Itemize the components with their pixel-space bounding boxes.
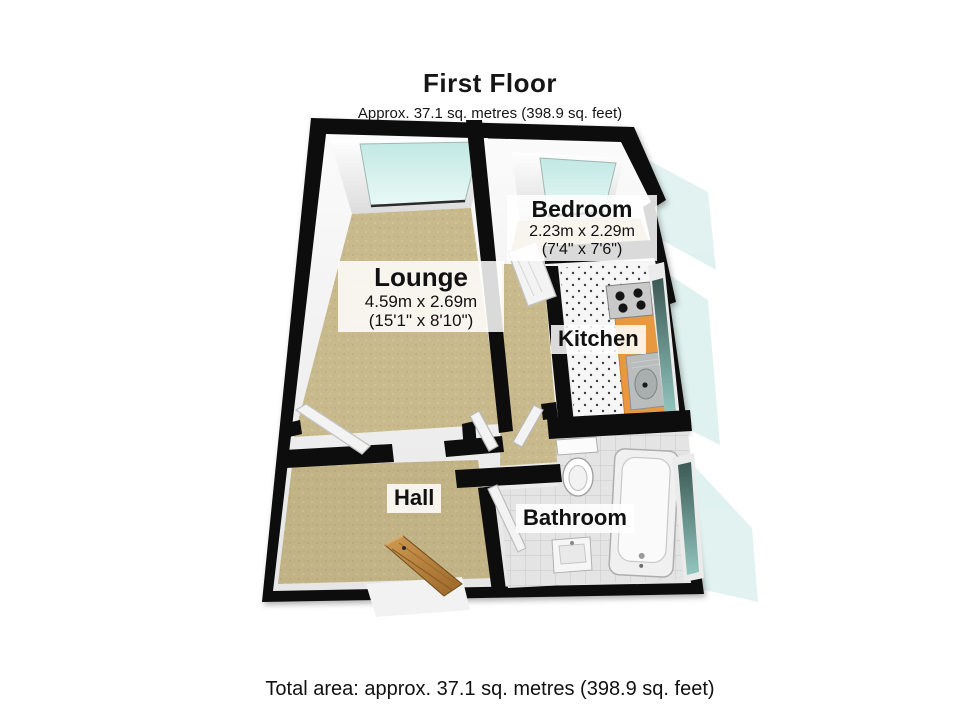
lounge-north-wall	[330, 138, 488, 214]
room-label-lounge: Lounge 4.59m x 2.69m (15'1" x 8'10")	[338, 261, 504, 332]
gas-hob	[606, 282, 653, 319]
room-label-hall: Hall	[387, 484, 441, 513]
lounge-dimensions-metric: 4.59m x 2.69m	[345, 292, 497, 311]
room-label-kitchen: Kitchen	[551, 325, 646, 354]
kitchen-name: Kitchen	[558, 327, 639, 352]
wall-stub-corridor-right	[541, 402, 558, 420]
room-label-bedroom: Bedroom 2.23m x 2.29m (7'4" x 7'6")	[507, 195, 657, 261]
bathroom-name: Bathroom	[523, 506, 627, 531]
lounge-dimensions-imperial: (15'1" x 8'10")	[345, 311, 497, 330]
lounge-name: Lounge	[345, 263, 497, 292]
wash-basin	[552, 537, 592, 573]
total-area-text: Total area: approx. 37.1 sq. metres (398…	[0, 678, 980, 701]
hall-name: Hall	[394, 486, 434, 511]
floorplan-page: First Floor Approx. 37.1 sq. metres (398…	[0, 0, 980, 712]
bedroom-dimensions-metric: 2.23m x 2.29m	[514, 223, 650, 241]
floor-plan-svg	[0, 0, 980, 712]
bedroom-name: Bedroom	[514, 197, 650, 223]
room-label-bathroom: Bathroom	[516, 504, 634, 533]
bedroom-dimensions-imperial: (7'4" x 7'6")	[514, 241, 650, 259]
lounge-window	[360, 142, 480, 206]
